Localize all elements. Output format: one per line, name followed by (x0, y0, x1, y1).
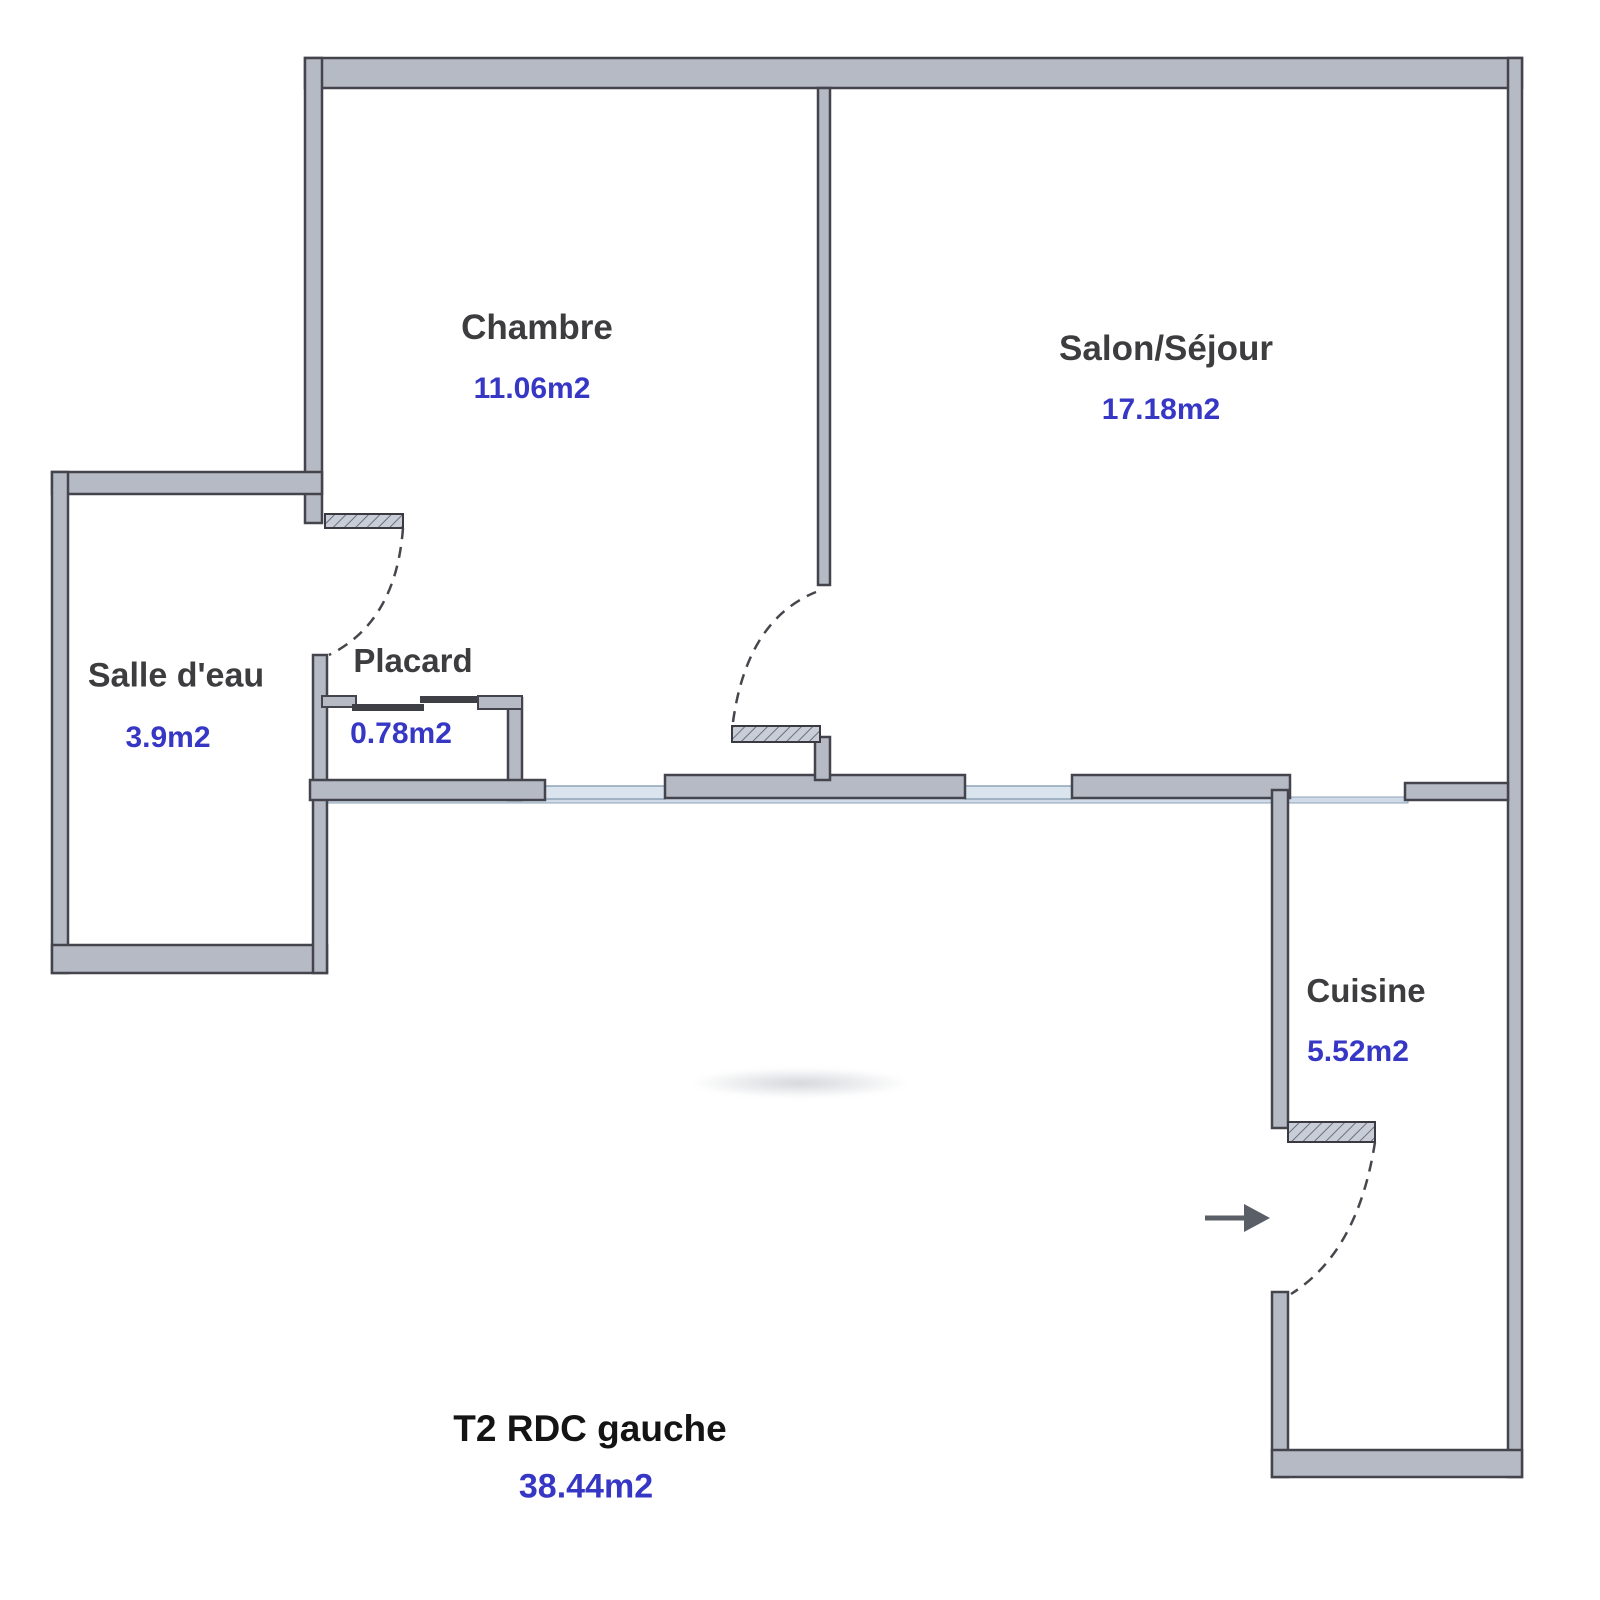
floorplan-page: Chambre 11.06m2 Salon/Séjour 17.18m2 Sal… (0, 0, 1600, 1600)
door-swing-arcs (329, 528, 1375, 1294)
wall-salledeau-top (52, 472, 322, 494)
window-1 (543, 786, 665, 799)
floorplan-drawing (0, 0, 1600, 1600)
chambre-door-arc (733, 592, 816, 722)
salledeau-door-arc (329, 528, 403, 655)
cuisine-label: Cuisine (1306, 972, 1425, 1010)
wall-door-stub (815, 737, 830, 780)
salon-label: Salon/Séjour (1059, 329, 1273, 369)
placard-door-bar-upper (420, 696, 484, 703)
chambre-area-label: 11.06m2 (474, 372, 591, 406)
salledeau-label: Salle d'eau (88, 657, 264, 696)
placard-area-label: 0.78m2 (350, 717, 452, 751)
plan-title: T2 RDC gauche (453, 1408, 726, 1450)
chambre-label: Chambre (461, 308, 613, 348)
wall-cuisine-left-upper (1272, 790, 1288, 1128)
salon-area-label: 17.18m2 (1102, 393, 1220, 427)
wall-cuisine-top (1405, 783, 1508, 800)
wall-salledeau-left (52, 472, 68, 973)
wall-salledeau-bottom (52, 945, 327, 973)
wall-placard-bottom (310, 780, 545, 800)
entrance-door-arc (1291, 1142, 1375, 1294)
walls (52, 58, 1522, 1477)
wall-right-exterior (1508, 58, 1522, 1477)
placard-door-cap-right (478, 696, 522, 709)
plan-total-area: 38.44m2 (519, 1468, 653, 1507)
entrance-arrow-icon (1205, 1204, 1270, 1232)
placard-label: Placard (353, 642, 472, 680)
window-2 (965, 786, 1072, 799)
entrance-door-leaf (1288, 1122, 1375, 1142)
wall-chambre-salon-divider (818, 88, 830, 585)
wall-mid-right (1072, 775, 1290, 798)
salledeau-area-label: 3.9m2 (125, 721, 210, 755)
wall-chambre-left (305, 58, 322, 523)
scan-artifact (690, 1068, 910, 1098)
salledeau-door-leaf (325, 514, 403, 528)
placard-sliding-doors (322, 696, 522, 711)
wall-top-exterior (305, 58, 1522, 88)
wall-cuisine-bottom (1272, 1450, 1522, 1477)
chambre-door-leaf (732, 726, 820, 742)
placard-door-bar-lower (352, 704, 424, 711)
door-leaves (325, 514, 1375, 1142)
cuisine-area-label: 5.52m2 (1307, 1035, 1409, 1069)
placard-door-cap-left (322, 696, 356, 707)
